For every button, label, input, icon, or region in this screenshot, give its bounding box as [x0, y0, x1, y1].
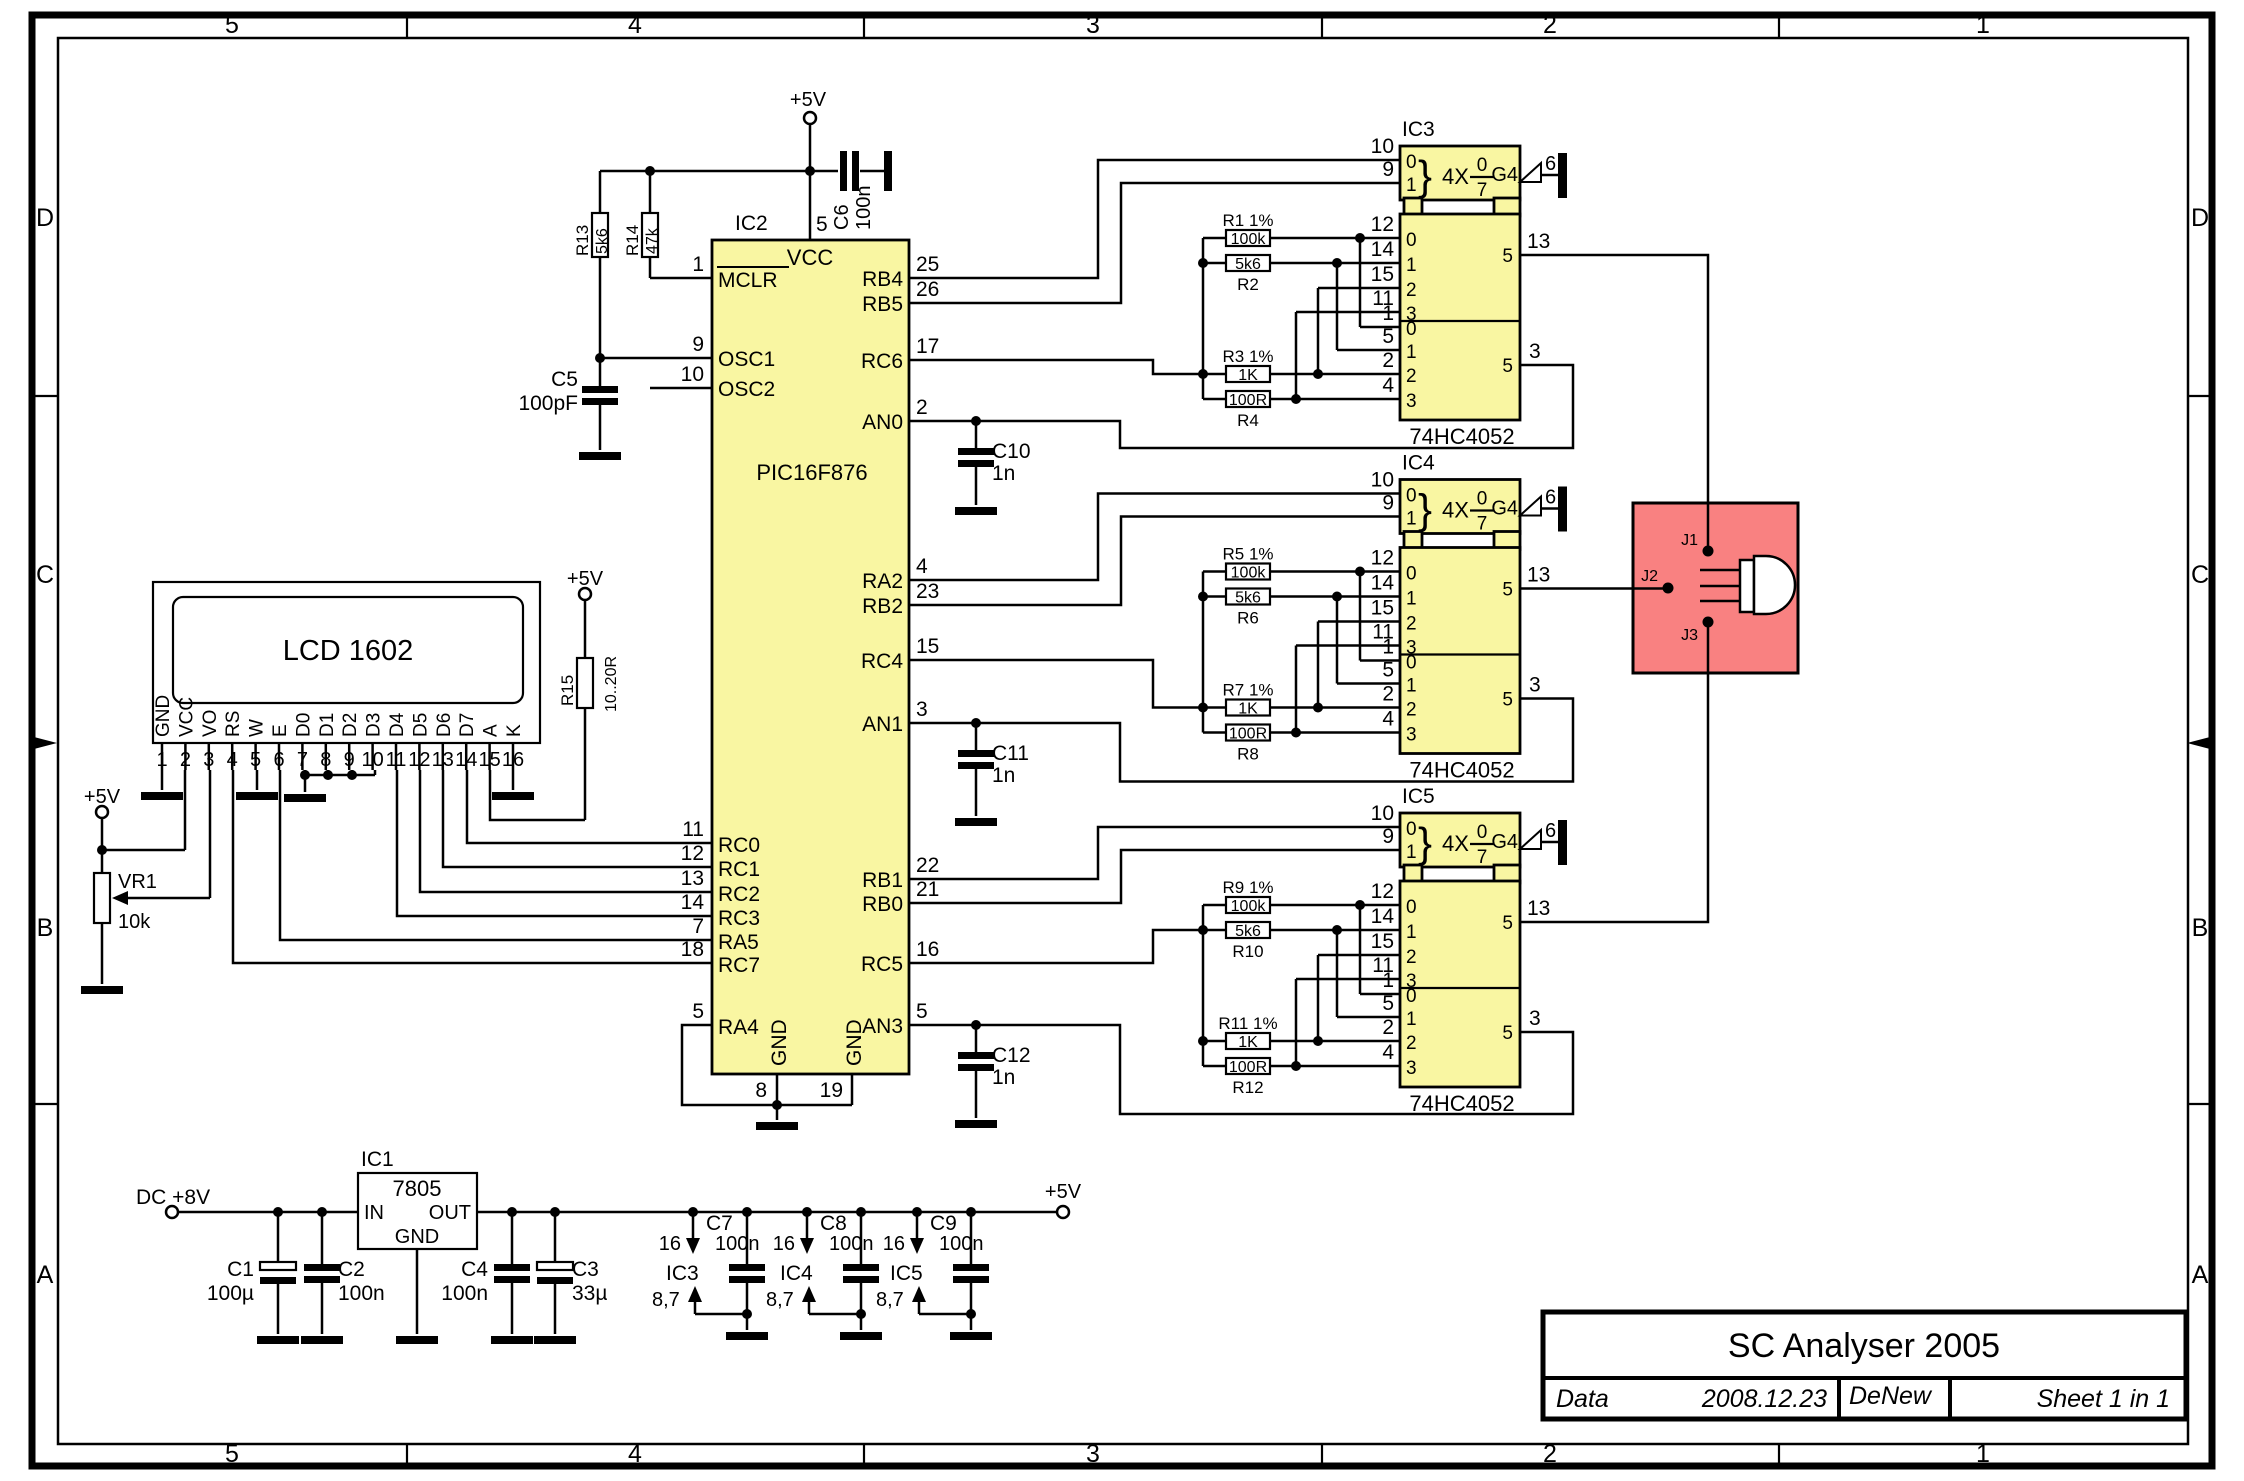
com-digit: 5: [1502, 690, 1513, 711]
brace: }: [1418, 486, 1432, 533]
gnd-pin-nums: 8,7: [652, 1289, 680, 1311]
r13-ref: R13: [573, 225, 592, 256]
target-ic: IC5: [890, 1262, 923, 1285]
mux-pin-num: 4: [1382, 708, 1394, 731]
mux-ref: IC5: [1402, 785, 1435, 808]
lcd-pin-name: D7: [457, 713, 478, 737]
mcu-pin-num: 17: [916, 335, 939, 358]
enable-triangle: [1520, 497, 1541, 516]
frame-col-label: 1: [1976, 1440, 1990, 1468]
lcd-pin-name: E: [270, 724, 291, 737]
frame-col-label: 2: [1543, 11, 1557, 39]
lcd-pin-name: D0: [293, 713, 314, 737]
brace: }: [1418, 152, 1432, 199]
lcd-pin-name: D5: [410, 713, 431, 737]
channel-digit: 1: [1406, 676, 1417, 697]
mux-pin-num: 3: [1529, 674, 1541, 697]
enable-label: G4: [1491, 831, 1518, 853]
frac-bot: 7: [1477, 180, 1488, 201]
mux-pin-num: 14: [1371, 238, 1395, 261]
lcd-title: LCD 1602: [283, 635, 414, 667]
mux-pin-num: 5: [1382, 659, 1394, 682]
gnd-pin-nums: 8,7: [876, 1289, 904, 1311]
mux-pin-num: 12: [1371, 547, 1394, 570]
sel-channel: 0: [1406, 486, 1417, 507]
resistor-label: R8: [1237, 745, 1259, 764]
mux-pin-num: 15: [1371, 263, 1394, 286]
sel-pin-num: 9: [1382, 492, 1394, 515]
r14-value: 47k: [644, 227, 661, 254]
mcu-vcc-label: VCC: [787, 245, 834, 270]
lcd-pin: E 6: [270, 724, 291, 771]
mux-pin-num: 3: [1529, 340, 1541, 363]
enable-ground-bar: [1558, 153, 1567, 198]
mcu-pin-num: 2: [916, 396, 928, 419]
mux-pin-num: 5: [1382, 992, 1394, 1015]
frac-bot: 7: [1477, 847, 1488, 868]
lcd-pin-name: D6: [434, 713, 455, 737]
sel-pin-num: 10: [1371, 135, 1394, 158]
to-ic-arrow: [910, 1238, 924, 1254]
cap-value: 100µ: [207, 1282, 254, 1305]
adc-filter-caps: C10 1n C11 1n C12 1n: [955, 416, 1031, 1128]
lcd-pin-name: D2: [340, 713, 361, 737]
mcu-pin-name: RB1: [862, 869, 903, 892]
mcu-pin-name: RB0: [862, 893, 903, 916]
ground-symbol: [756, 1122, 798, 1130]
mcu-pin-name: OSC1: [718, 348, 775, 371]
channel-digit: 1: [1406, 255, 1417, 276]
channel-digit: 0: [1406, 319, 1417, 340]
ground-symbol: [955, 818, 997, 826]
com-digit: 5: [1502, 246, 1513, 267]
rail-label: +5V: [84, 786, 121, 808]
from-ic-arrow: [688, 1286, 702, 1302]
com-digit: 5: [1502, 580, 1513, 601]
frame-col-label: 3: [1086, 11, 1100, 39]
lcd-pin-num: 15: [478, 749, 500, 771]
cap-value: 33µ: [572, 1282, 607, 1305]
ground-symbol: [491, 1336, 533, 1344]
mcu-pin-num: 12: [681, 842, 704, 865]
lcd-pin-num: 12: [408, 749, 430, 771]
cap-ref: C9: [930, 1212, 957, 1235]
cap-ref: C3: [572, 1258, 599, 1281]
mcu-pin-num: 16: [916, 938, 939, 961]
from-ic-arrow: [912, 1286, 926, 1302]
sel-channel: 0: [1406, 152, 1417, 173]
capacitor-c6: C6 100n: [831, 151, 892, 230]
ground-symbol: [396, 1336, 438, 1344]
cap-ref: C12: [992, 1044, 1031, 1067]
mcu-pin-name: RC0: [718, 834, 760, 857]
channel-digit: 0: [1406, 897, 1417, 918]
mcu-pin-name: RA5: [718, 931, 759, 954]
v5-terminal: [1057, 1206, 1069, 1218]
ground-symbol: [534, 1336, 576, 1344]
to-ic-arrow: [800, 1238, 814, 1254]
mcu-pin-num: 13: [681, 867, 704, 890]
cap-value: 100n: [715, 1233, 760, 1255]
cap-ref: C7: [706, 1212, 733, 1235]
mcu-pin-num: 5: [692, 1000, 704, 1023]
mcu-gnd-label: GND: [768, 1019, 791, 1066]
mux-pin-num: 13: [1527, 564, 1550, 587]
mux-group: IC3 0 1 } 4X 0 7 G4 6 10 9 R1 1% 100k 5k…: [1198, 118, 1567, 449]
vcc-pin-num: 16: [883, 1233, 905, 1255]
mux-pin-num: 13: [1527, 897, 1550, 920]
lcd-pin-num: 13: [432, 749, 454, 771]
channel-digit: 2: [1406, 947, 1417, 968]
resistor-value: 100k: [1231, 565, 1267, 582]
mux-group: IC5 0 1 } 4X 0 7 G4 6 10 9 R9 1% 100k 5k…: [1198, 785, 1567, 1116]
capacitor-c5: C5 100pF: [518, 368, 621, 460]
channel-digit: 3: [1406, 391, 1417, 412]
mux-pin-num: 1: [1382, 636, 1394, 659]
pot-body: [94, 873, 110, 923]
c6-value: 100n: [853, 186, 875, 231]
sel-channel: 0: [1406, 819, 1417, 840]
frac-top: 0: [1477, 822, 1488, 843]
sheet-info: Sheet 1 in 1: [2037, 1385, 2170, 1413]
gnd-pin-nums: 8,7: [766, 1289, 794, 1311]
c5-value: 100pF: [518, 392, 578, 415]
regulator-gnd: GND: [395, 1226, 439, 1248]
lcd-pin-name: VCC: [176, 697, 197, 737]
channel-digit: 3: [1406, 1058, 1417, 1079]
pot-value: 10k: [118, 911, 151, 933]
mux-pin-num: 14: [1371, 905, 1395, 928]
c5-ref: C5: [551, 368, 578, 391]
cap-value: 1n: [992, 462, 1015, 485]
resistor-value: 100k: [1231, 231, 1267, 248]
lcd-module: LCD 1602 GND 1 VCC 2 VO 3 RS 4 W 5: [81, 568, 712, 994]
resistor-label: R10: [1232, 942, 1263, 961]
lcd-pin-name: VO: [200, 710, 221, 737]
lcd-pin-num: 14: [455, 749, 477, 771]
lcd-pin-name: K: [504, 724, 525, 737]
lcd-pin: GND 1: [153, 695, 174, 771]
mcu-pin-num: 1: [692, 253, 704, 276]
title-block: SC Analyser 2005 Data 2008.12.23 DeNew S…: [1543, 1312, 2186, 1419]
mcu-pin-name: RC2: [718, 883, 760, 906]
backlight-resistor: +5V R15 10..20R: [558, 568, 620, 712]
jack-label: J3: [1681, 627, 1698, 644]
frame-row-label: A: [2192, 1261, 2209, 1289]
resistor-label: R6: [1237, 609, 1259, 628]
channel-digit: 0: [1406, 653, 1417, 674]
mux-pin-num: 2: [1382, 349, 1394, 372]
jack-label: J2: [1641, 568, 1658, 585]
psu-wires: [178, 1212, 1057, 1334]
transistor-package-bar: [1740, 560, 1754, 612]
channel-digit: 0: [1406, 986, 1417, 1007]
enable-label: G4: [1491, 164, 1518, 186]
lcd-pin-name: GND: [153, 695, 174, 737]
mux-pin-num: 1: [1382, 969, 1394, 992]
pot-ref: VR1: [118, 871, 157, 893]
mcu-pin-name: RA4: [718, 1016, 759, 1039]
ground-symbol: [236, 792, 278, 800]
resistor-label: R9 1%: [1222, 878, 1273, 897]
ground-symbol: [955, 1120, 997, 1128]
v5-terminal: [579, 588, 591, 600]
mux-pin-num: 5: [1382, 325, 1394, 348]
resistor-label: R7 1%: [1222, 681, 1273, 700]
mcu-pin-num: 22: [916, 854, 939, 877]
ground-symbol: [950, 1332, 992, 1340]
lcd-pin: VCC 2: [176, 697, 197, 771]
mux-pin-num: 12: [1371, 880, 1394, 903]
sel-channel: 1: [1406, 842, 1417, 863]
enable-label: G4: [1491, 498, 1518, 520]
cap-ref: C8: [820, 1212, 847, 1235]
lcd-pin-num: 7: [297, 749, 308, 771]
target-ic: IC3: [666, 1262, 699, 1285]
regulator-part: 7805: [393, 1176, 442, 1201]
lcd-pin-num: 16: [502, 749, 524, 771]
mcu-pin-num: 5: [916, 1000, 928, 1023]
frame-row-label: D: [2191, 204, 2209, 232]
ground-symbol: [726, 1332, 768, 1340]
lcd-pin-num: 5: [250, 749, 261, 771]
enable-ground-bar: [1558, 820, 1567, 865]
com-digit: 5: [1502, 356, 1513, 377]
mux-pin-num: 3: [1529, 1007, 1541, 1030]
r15-value: 10..20R: [603, 656, 620, 712]
mcu-pin-name: AN0: [862, 411, 903, 434]
cap-value: 1n: [992, 764, 1015, 787]
mcu-pin-name: AN1: [862, 713, 903, 736]
mux-group: IC4 0 1 } 4X 0 7 G4 6 10 9 R5 1% 100k 5k…: [1198, 452, 1567, 783]
resistor-value: 1K: [1238, 367, 1258, 384]
lcd-pin-name: W: [247, 719, 268, 737]
mcu-pin-num: 10: [681, 363, 704, 386]
mux-pin-num: 15: [1371, 597, 1394, 620]
author: DeNew: [1849, 1382, 1933, 1410]
mcu-pin-num: 4: [916, 555, 928, 578]
channel-digit: 0: [1406, 564, 1417, 585]
cap-ref: C10: [992, 440, 1031, 463]
jack-label: J1: [1681, 532, 1698, 549]
from-ic-arrow: [802, 1286, 816, 1302]
resistor-value: 100R: [1229, 726, 1267, 743]
channel-digit: 2: [1406, 614, 1417, 635]
channel-digit: 2: [1406, 280, 1417, 301]
frame-col-label: 1: [1976, 11, 1990, 39]
v5-terminal: [96, 806, 108, 818]
frame-row-label: C: [36, 561, 54, 589]
regulator-out: OUT: [429, 1202, 471, 1224]
mcu-gnd-pin: 19: [820, 1079, 843, 1102]
mux-ref: IC4: [1402, 452, 1435, 475]
lcd-pin-num: 3: [203, 749, 214, 771]
r15-ref: R15: [558, 675, 577, 706]
mux-pin-num: 2: [1382, 683, 1394, 706]
mcu-pin-name: RA2: [862, 570, 903, 593]
to-ic-arrow: [686, 1238, 700, 1254]
lcd-pin: K 16: [502, 724, 525, 771]
center-arrow-right: [2187, 737, 2210, 749]
sel-pin-num: 9: [1382, 158, 1394, 181]
mcu-pin-name: RB5: [862, 293, 903, 316]
mcu-pin-name: RC5: [861, 953, 903, 976]
cap-ref: C1: [227, 1258, 254, 1281]
resistor-label: R4: [1237, 411, 1259, 430]
rail-label: +5V: [790, 89, 827, 111]
ground-symbol: [492, 792, 534, 800]
mux-pin-num: 2: [1382, 1016, 1394, 1039]
frame-col-label: 5: [225, 1440, 239, 1468]
resistor-label: R5 1%: [1222, 545, 1273, 564]
mcu-gnd-pin: 8: [755, 1079, 767, 1102]
contrast-pot: +5V VR1 10k: [81, 786, 157, 994]
resistor-value: 1K: [1238, 701, 1258, 718]
channel-digit: 1: [1406, 589, 1417, 610]
mux-part: 74HC4052: [1409, 758, 1514, 783]
frac-top: 0: [1477, 489, 1488, 510]
mux-pin-num: 4: [1382, 374, 1394, 397]
frame-col-label: 4: [628, 11, 642, 39]
channel-digit: 1: [1406, 342, 1417, 363]
lcd-pin-name: D4: [387, 712, 408, 737]
ground-bar: [884, 151, 892, 191]
resistor-value: 5k6: [1235, 256, 1261, 273]
resistor-label: R1 1%: [1222, 211, 1273, 230]
mcu-pin-num: 7: [692, 915, 704, 938]
mcu-pin-name: RB4: [862, 268, 903, 291]
decoupling-group: 16 C7 100n IC3 8,7: [652, 1207, 768, 1340]
mcu-pin-num: 23: [916, 580, 939, 603]
frame-row-label: B: [2192, 914, 2209, 942]
cap-ref: C11: [992, 742, 1029, 765]
enable-pin: 6: [1545, 487, 1556, 509]
resistor-value: 100k: [1231, 898, 1267, 915]
mcu-pin-name: RC4: [861, 650, 903, 673]
cap-value: 100n: [338, 1282, 385, 1305]
cap-value: 100n: [441, 1282, 488, 1305]
channel-digit: 0: [1406, 230, 1417, 251]
frame-col-label: 4: [628, 1440, 642, 1468]
mux-pin-num: 15: [1371, 930, 1394, 953]
mux-multi: 4X: [1442, 164, 1469, 189]
lcd-pin-num: 11: [386, 749, 407, 771]
mcu-pin-num: 3: [916, 698, 928, 721]
target-ic: IC4: [780, 1262, 813, 1285]
mux-multi: 4X: [1442, 498, 1469, 523]
enable-pin: 6: [1545, 153, 1556, 175]
enable-triangle: [1520, 830, 1541, 849]
mcu-pin-num: 26: [916, 278, 939, 301]
mcu-part: PIC16F876: [756, 460, 867, 485]
mcu-gnd-label: GND: [843, 1019, 866, 1066]
sel-channel: 1: [1406, 175, 1417, 196]
mcu-pin-num: 21: [916, 878, 939, 901]
enable-ground-bar: [1558, 487, 1567, 532]
resistor-label: R2: [1237, 275, 1259, 294]
ground-symbol: [81, 986, 123, 994]
sel-pin-num: 10: [1371, 802, 1394, 825]
mcu-pin-num: 11: [682, 818, 704, 841]
sheet-title: SC Analyser 2005: [1728, 1327, 2000, 1365]
cap-value: 100n: [939, 1233, 984, 1255]
r13-value: 5k6: [594, 228, 611, 254]
date-field-label: Data: [1556, 1385, 1609, 1413]
lcd-pin: W 5: [247, 719, 268, 771]
brace: }: [1418, 819, 1432, 866]
frac-bot: 7: [1477, 514, 1488, 535]
frac-top: 0: [1477, 155, 1488, 176]
frame-row-label: A: [37, 1261, 54, 1289]
mux-pin-num: 12: [1371, 213, 1394, 236]
lcd-pin-name: D1: [317, 713, 338, 737]
rail-label: +5V: [1045, 1181, 1082, 1203]
ground-symbol: [284, 794, 326, 802]
lcd-pin-num: 1: [156, 749, 167, 771]
mcu-vcc-pin: 5: [816, 213, 828, 236]
lcd-pin-name: A: [481, 724, 502, 737]
regulator-in: IN: [364, 1202, 384, 1224]
lcd-pin: A 15: [478, 724, 501, 771]
mcu-pin-name: OSC2: [718, 378, 775, 401]
mcu-pin-name: RB2: [862, 595, 903, 618]
frame-row-label: C: [2191, 561, 2209, 589]
mux-main-block: [1400, 548, 1520, 754]
mcu-pin-num: 14: [681, 891, 705, 914]
mux-main-block: [1400, 214, 1520, 420]
mcu-pin-name: RC3: [718, 907, 760, 930]
lcd-pin-num: 10: [361, 749, 383, 771]
ground-symbol: [579, 452, 621, 460]
mux-multi: 4X: [1442, 831, 1469, 856]
sel-pin-num: 10: [1371, 469, 1394, 492]
resistor-value: 100R: [1229, 1059, 1267, 1076]
regulator-ref: IC1: [361, 1148, 394, 1171]
mux-pin-num: 14: [1371, 572, 1395, 595]
decoupling-group: 16 C8 100n IC4 8,7: [766, 1207, 882, 1340]
mcu-pin-name: RC1: [718, 858, 760, 881]
decoupling-group: 16 C9 100n IC5 8,7: [876, 1207, 992, 1340]
channel-digit: 2: [1406, 1033, 1417, 1054]
ground-symbol: [301, 1336, 343, 1344]
frame-row-label: D: [36, 204, 54, 232]
lcd-pin-name: RS: [223, 711, 244, 737]
mcu-pin-name: AN3: [862, 1015, 903, 1038]
c6-ref: C6: [831, 204, 853, 230]
ground-symbol: [955, 507, 997, 515]
vcc-pin-num: 16: [659, 1233, 681, 1255]
resistor-value: 100R: [1229, 392, 1267, 409]
vcc-pin-num: 16: [773, 1233, 795, 1255]
mcu-pin-num: 9: [692, 333, 704, 356]
enable-triangle: [1520, 163, 1541, 182]
mcu-pin-name: MCLR: [718, 269, 778, 292]
mux-pin-num: 4: [1382, 1041, 1394, 1064]
mux-part: 74HC4052: [1409, 1091, 1514, 1116]
resistor-value: 1K: [1238, 1034, 1258, 1051]
schematic-page: 5 4 3 2 1 5 4 3 2 1 D C B A D C B A J1 J…: [0, 0, 2244, 1481]
center-arrow-left: [34, 737, 57, 749]
frame-col-label: 5: [225, 11, 239, 39]
mcu-pin-num: 15: [916, 635, 939, 658]
resistor-label: R3 1%: [1222, 347, 1273, 366]
resistor-label: R11 1%: [1218, 1014, 1277, 1033]
cap-ref: C4: [461, 1258, 488, 1281]
lcd-pin-num: 4: [227, 749, 238, 771]
mux-part: 74HC4052: [1409, 424, 1514, 449]
rail-label: +5V: [567, 568, 604, 590]
mcu-ref: IC2: [735, 212, 768, 235]
